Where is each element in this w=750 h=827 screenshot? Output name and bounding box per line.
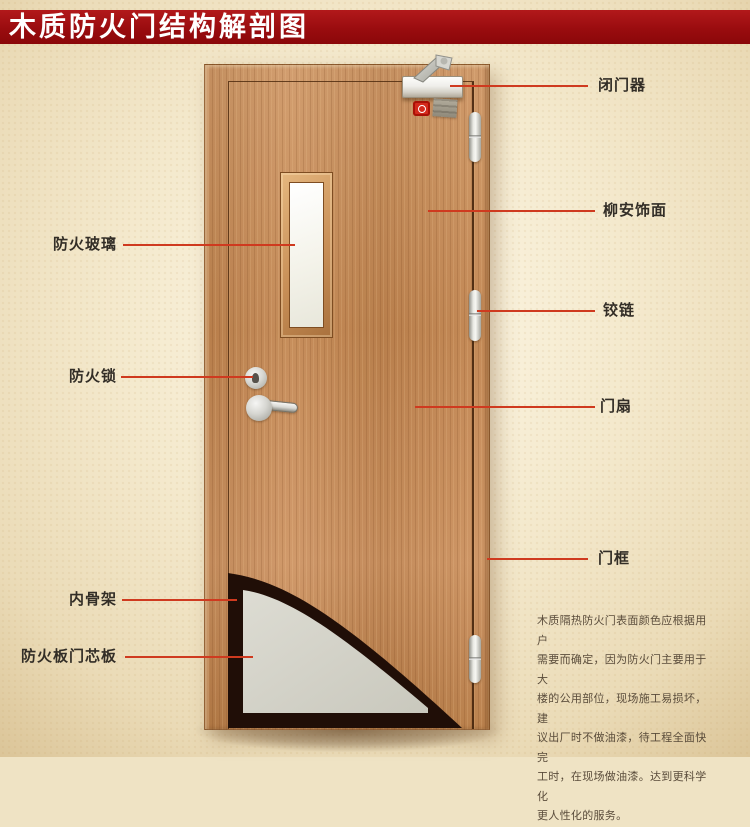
door-frame-slab	[204, 64, 490, 730]
description-text: 木质隔热防火门表面颜色应根据用户 需要而确定，因为防火门主要用于大 楼的公用部位…	[537, 612, 717, 827]
label-door-frame: 门框	[598, 551, 630, 567]
label-door-leaf: 门扇	[600, 399, 632, 415]
label-fire-lock: 防火锁	[0, 369, 117, 385]
label-hinge: 铰链	[603, 303, 635, 319]
hinge-middle	[469, 290, 481, 341]
callout-line-lauan-veneer	[428, 210, 595, 212]
fire-glass-pane	[289, 182, 324, 328]
label-door-closer: 闭门器	[598, 78, 646, 94]
callout-line-door-frame	[487, 558, 588, 560]
callout-line-door-closer	[450, 85, 588, 87]
lock-cylinder	[245, 367, 267, 389]
keyhole-icon	[252, 373, 259, 383]
label-inner-skeleton: 内骨架	[0, 592, 117, 608]
badge-ring-icon	[418, 105, 426, 113]
callout-line-fire-glass	[123, 244, 295, 246]
hinge-bottom	[469, 635, 481, 683]
label-lauan-veneer: 柳安饰面	[603, 203, 667, 219]
callout-line-door-leaf	[415, 406, 595, 408]
callout-line-fire-board-core	[125, 656, 253, 658]
callout-line-hinge	[477, 310, 595, 312]
label-fire-board-core: 防火板门芯板	[0, 649, 117, 665]
hinge-top	[469, 112, 481, 162]
callout-line-fire-lock	[121, 376, 253, 378]
handle-rose	[246, 395, 272, 421]
door-closer-body	[402, 76, 463, 98]
metal-nameplate	[432, 98, 457, 118]
callout-line-inner-skeleton	[122, 599, 237, 601]
red-badge	[413, 101, 430, 116]
title-banner: 木质防火门结构解剖图	[0, 10, 750, 44]
diagram-canvas: 木质防火门结构解剖图	[0, 0, 750, 757]
label-fire-glass: 防火玻璃	[0, 237, 117, 253]
fire-glass-window-frame	[280, 172, 333, 338]
